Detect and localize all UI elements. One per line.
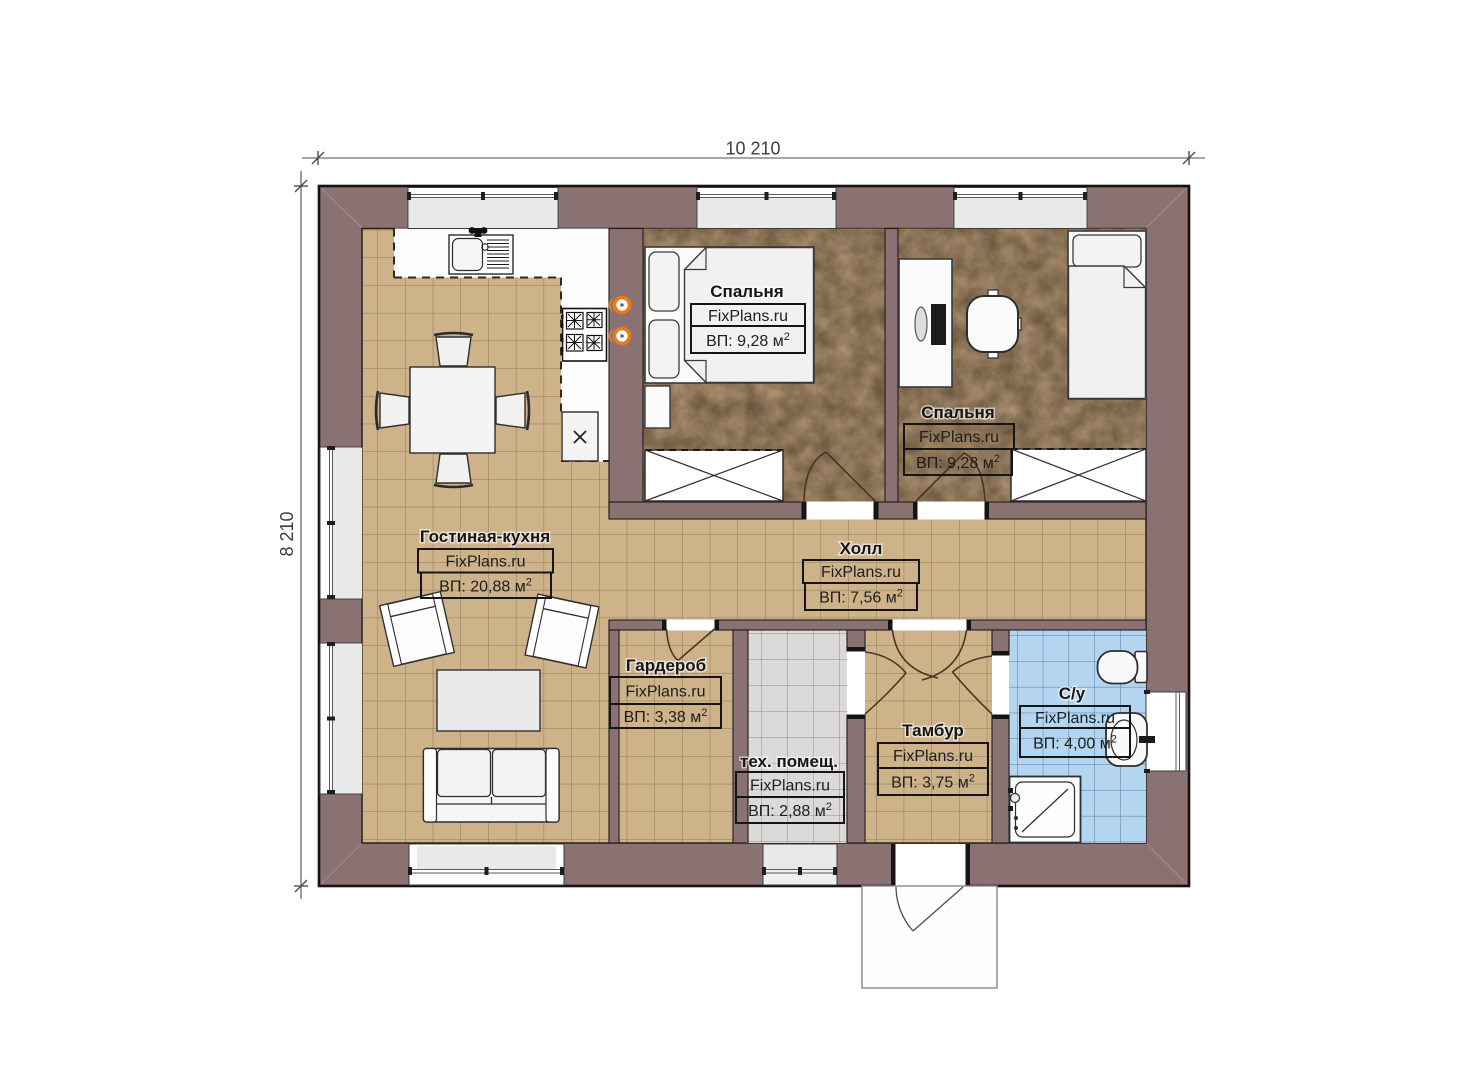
svg-text:Холл: Холл bbox=[840, 539, 883, 558]
svg-text:ВП: 20,88 м2: ВП: 20,88 м2 bbox=[439, 577, 532, 596]
svg-text:FixPlans.ru: FixPlans.ru bbox=[625, 684, 705, 701]
svg-text:ВП: 9,28 м2: ВП: 9,28 м2 bbox=[706, 331, 790, 350]
svg-text:ВП: 4,00 м2: ВП: 4,00 м2 bbox=[1033, 734, 1117, 753]
svg-text:FixPlans.ru: FixPlans.ru bbox=[919, 429, 999, 446]
svg-text:ВП: 9,28 м2: ВП: 9,28 м2 bbox=[916, 453, 1000, 472]
svg-text:Тамбур: Тамбур bbox=[902, 721, 964, 740]
svg-text:Гостиная-кухня: Гостиная-кухня bbox=[420, 527, 550, 546]
svg-text:FixPlans.ru: FixPlans.ru bbox=[821, 564, 901, 581]
svg-text:FixPlans.ru: FixPlans.ru bbox=[445, 554, 525, 571]
svg-text:тех. помещ.: тех. помещ. bbox=[740, 752, 838, 771]
svg-text:10 210: 10 210 bbox=[725, 139, 780, 159]
svg-text:FixPlans.ru: FixPlans.ru bbox=[893, 748, 973, 765]
svg-text:ВП: 3,38 м2: ВП: 3,38 м2 bbox=[624, 707, 708, 726]
svg-text:Спальня: Спальня bbox=[921, 403, 994, 422]
svg-text:FixPlans.ru: FixPlans.ru bbox=[708, 308, 788, 325]
svg-text:ВП: 2,88 м2: ВП: 2,88 м2 bbox=[748, 801, 832, 820]
svg-text:Гардероб: Гардероб bbox=[626, 656, 706, 675]
svg-text:FixPlans.ru: FixPlans.ru bbox=[1035, 710, 1115, 727]
svg-text:8 210: 8 210 bbox=[277, 511, 297, 556]
svg-text:С/у: С/у bbox=[1059, 684, 1086, 703]
svg-text:FixPlans.ru: FixPlans.ru bbox=[750, 778, 830, 795]
svg-text:ВП: 7,56 м2: ВП: 7,56 м2 bbox=[819, 588, 903, 607]
svg-text:Спальня: Спальня bbox=[710, 282, 783, 301]
svg-text:ВП: 3,75 м2: ВП: 3,75 м2 bbox=[891, 773, 975, 792]
